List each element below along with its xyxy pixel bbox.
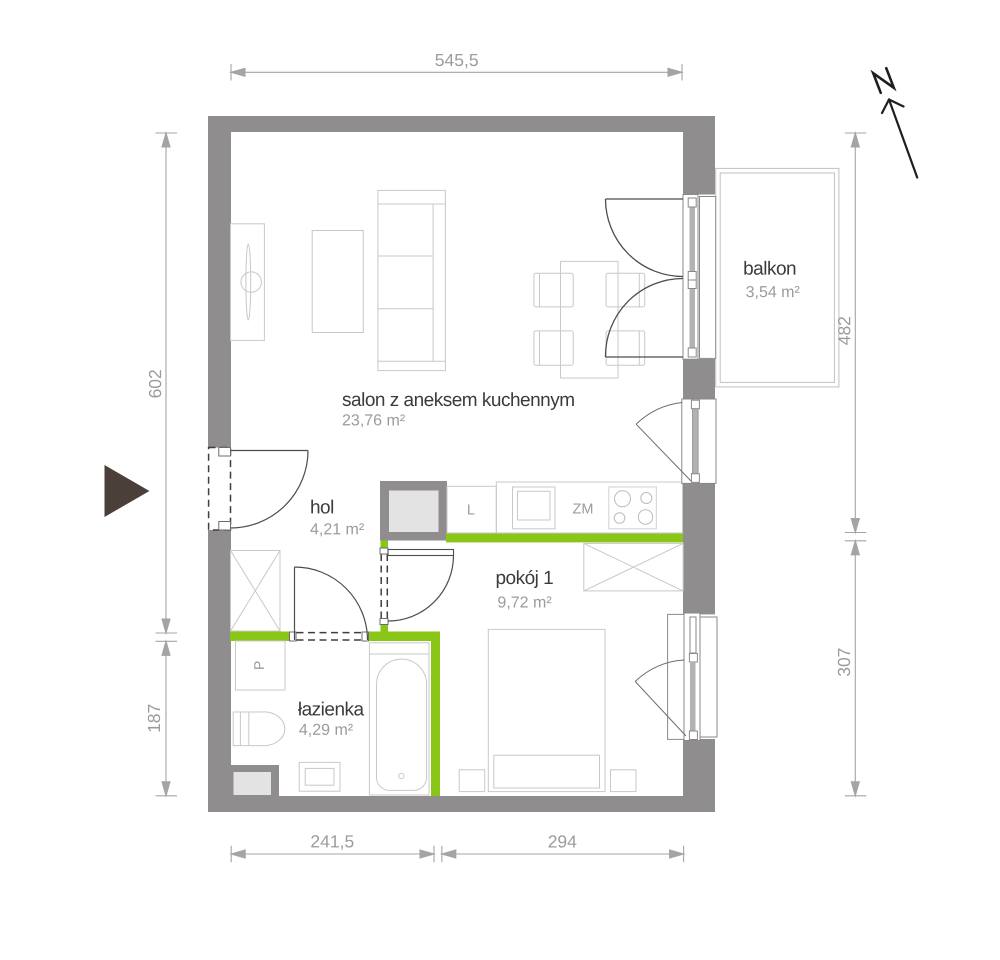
- svg-text:23,76 m²: 23,76 m²: [342, 412, 406, 429]
- svg-text:187: 187: [144, 704, 164, 733]
- svg-text:307: 307: [834, 648, 854, 677]
- svg-text:545,5: 545,5: [435, 50, 479, 70]
- svg-text:balkon: balkon: [743, 259, 796, 280]
- svg-text:9,72 m²: 9,72 m²: [497, 594, 552, 611]
- svg-text:L: L: [467, 502, 475, 518]
- svg-text:294: 294: [548, 832, 577, 852]
- svg-text:pokój 1: pokój 1: [495, 568, 553, 589]
- svg-text:3,54 m²: 3,54 m²: [746, 284, 801, 301]
- svg-text:salon z aneksem kuchennym: salon z aneksem kuchennym: [342, 390, 575, 411]
- svg-text:hol: hol: [310, 497, 334, 518]
- svg-text:P: P: [251, 661, 267, 670]
- svg-text:241,5: 241,5: [310, 831, 354, 851]
- svg-text:łazienka: łazienka: [298, 699, 365, 720]
- svg-text:4,21 m²: 4,21 m²: [310, 521, 365, 538]
- svg-text:602: 602: [145, 369, 165, 398]
- svg-text:ZM: ZM: [573, 502, 594, 518]
- svg-text:4,29 m²: 4,29 m²: [299, 722, 354, 739]
- svg-text:482: 482: [834, 316, 854, 345]
